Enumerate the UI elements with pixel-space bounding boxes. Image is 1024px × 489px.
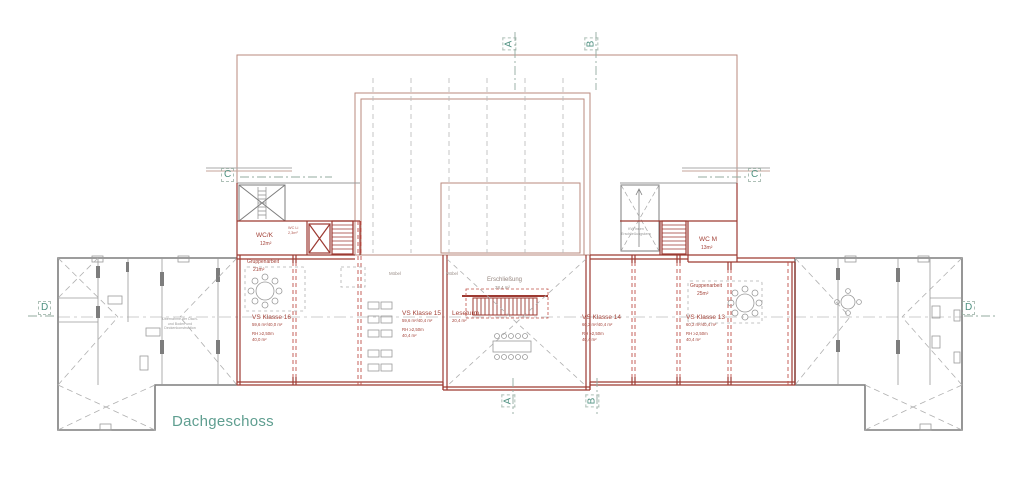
furniture-label-moebel-1: Möbel: [389, 271, 401, 276]
partition-wall-stubs: [293, 255, 731, 385]
leseturm-name: Leseturm: [452, 310, 479, 318]
room-label-wck: WC/K: [256, 232, 273, 240]
klasse16-area2: 40,0 m²: [252, 337, 291, 343]
room-area-erschliessung: 38,4 m²: [495, 285, 510, 290]
section-marker-b-top: B: [584, 38, 598, 51]
room-label-group-right: Gruppenarbeit: [690, 283, 722, 289]
page-title: Dachgeschoss: [172, 413, 274, 430]
room-label-erschliessung: Erschließung: [487, 277, 522, 284]
room-label-group-left: Gruppenarbeit: [247, 259, 279, 265]
left-wing-note-line3: Deckenkonstruktion: [152, 326, 208, 331]
section-marker-a-top: A: [502, 38, 516, 51]
klasse15-area2: 40,4 m²: [402, 333, 441, 339]
room-label-wcli: WC Li: [288, 226, 298, 231]
section-marker-d-left: D: [38, 301, 51, 315]
furniture-label-moebel-2: Möbel: [446, 271, 458, 276]
room-label-klasse14: VS Klasse 14 60,2 m²/40,4 m² RH ≥2,50m 4…: [582, 314, 621, 343]
core-right-note-line2: Erschließungskern: [618, 232, 654, 237]
section-marker-d-right: D: [962, 301, 975, 315]
room-label-leseturm: Leseturm 20,4 m²: [452, 310, 479, 324]
klasse14-area2: 40,4 m²: [582, 337, 621, 343]
room-area-wck: 12m²: [260, 241, 271, 247]
left-wing-wall-stubs: [96, 262, 220, 354]
right-wing-roof-dashes: [795, 258, 962, 430]
left-wing-walls: [58, 258, 237, 430]
right-stair-core: [621, 185, 659, 251]
section-marker-c-right: C: [748, 168, 761, 182]
room-label-klasse15: VS Klasse 15 59,6 m²/40,4 m² RH ≥2,50m 4…: [402, 310, 441, 339]
room-area-group-left: 21m²: [253, 267, 264, 273]
section-lines: [28, 32, 996, 414]
right-wing-walls: [795, 258, 962, 430]
left-wing-note: Übernahme der Dach- und Boden und Decken…: [152, 317, 208, 331]
left-wing-roof-dashes: [58, 258, 237, 430]
klasse15-areas: 59,6 m²/40,4 m²: [402, 318, 441, 324]
klasse14-name: VS Klasse 14: [582, 314, 621, 322]
klasse16-name: VS Klasse 16: [252, 314, 291, 322]
right-wing-wall-stubs: [836, 268, 900, 354]
classroom15-desks: [368, 302, 392, 371]
klasse16-areas: 59,6 m²/40,0 m²: [252, 322, 291, 328]
room-area-wcli: 2,3m²: [288, 231, 298, 236]
core-right-note: KW Innen Erschließungskern: [618, 227, 654, 236]
section-marker-c-left: C: [221, 168, 234, 182]
group-left-table: [245, 267, 365, 311]
leseturm-area: 20,4 m²: [452, 318, 479, 324]
eave-lines: [206, 168, 770, 183]
section-marker-a-bottom: A: [501, 395, 515, 408]
room-label-klasse13: VS Klasse 13 60,2 m²/40,4 m² RH ≥2,50m 4…: [686, 314, 725, 343]
room-area-wcm: 13m²: [701, 245, 712, 251]
klasse13-areas: 60,2 m²/40,4 m²: [686, 322, 725, 328]
clerestory-grid-dashes: [373, 78, 563, 253]
klasse13-area2: 40,4 m²: [686, 337, 725, 343]
room-area-group-right: 25m²: [697, 291, 708, 297]
section-marker-b-bottom: B: [585, 395, 599, 408]
right-wing-table: [835, 289, 862, 316]
klasse15-name: VS Klasse 15: [402, 310, 441, 318]
klasse14-areas: 60,2 m²/40,4 m²: [582, 322, 621, 328]
left-stair-core: [239, 185, 285, 221]
floor-plan-canvas: A B A B C C D D WC/K 12m² WC Li 2,3m² Gr…: [0, 0, 1024, 489]
leseturm-table: [493, 334, 531, 360]
partition-walls-dashed: [293, 221, 788, 385]
room-label-klasse16: VS Klasse 16 59,6 m²/40,0 m² RH ≥2,50m 4…: [252, 314, 291, 343]
floor-plan-drawing: [0, 0, 1024, 489]
klasse13-name: VS Klasse 13: [686, 314, 725, 322]
room-label-wcm: WC M: [699, 236, 717, 244]
